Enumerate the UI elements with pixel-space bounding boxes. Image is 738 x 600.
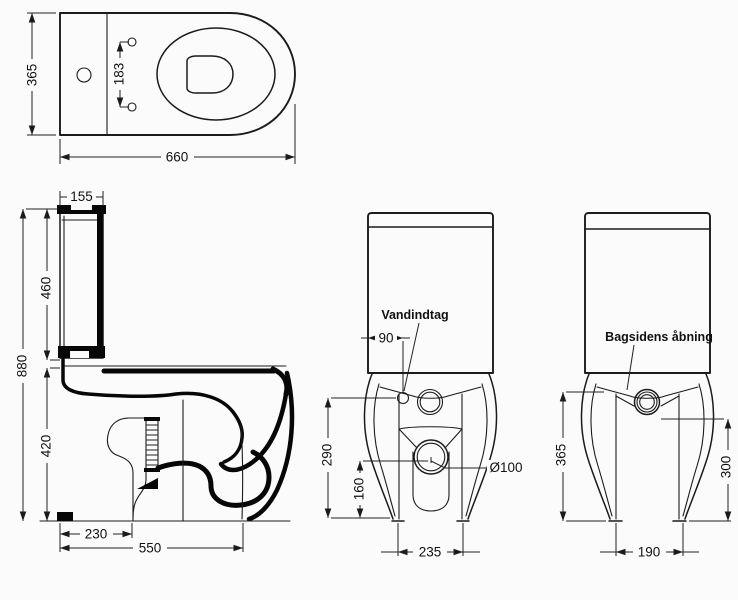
- dim-top-depth-value: 365: [25, 64, 40, 87]
- leader-rear-opening: [627, 345, 634, 390]
- leader-water-inlet: [404, 323, 419, 391]
- dim-back-base-width-value: 190: [638, 545, 661, 560]
- front-cistern-outline: [368, 213, 493, 373]
- label-water-inlet: Vandindtag: [381, 308, 448, 391]
- dim-rear-outlet-height: 300: [661, 419, 734, 521]
- side-view: 155 880 460 420: [15, 189, 293, 556]
- dim-seat-hole-spacing: 183: [112, 42, 130, 107]
- dim-outlet-height-value: 160: [352, 478, 367, 501]
- flush-button: [77, 68, 91, 82]
- label-rear-opening-text: Bagsidens åbning: [605, 330, 713, 344]
- dim-bowl-height: 420: [39, 368, 61, 521]
- dim-front-base-width: 235: [381, 523, 480, 560]
- dim-trap-offset-value: 230: [85, 527, 108, 542]
- dim-total-height: 880: [15, 209, 59, 521]
- dim-front-base-width-value: 235: [419, 545, 442, 560]
- drain-pipe: [137, 417, 160, 489]
- back-cistern-outline: [585, 213, 710, 373]
- bowl-underside: [63, 358, 242, 462]
- cistern-right-wall: [97, 214, 103, 350]
- dim-trap-offset: 230: [60, 523, 132, 542]
- back-bowl-outer-right: [685, 374, 714, 519]
- bolt-hole-top: [128, 38, 136, 46]
- dim-top-depth: 365: [25, 13, 57, 135]
- toilet-dimension-drawing: 365 183 660: [0, 0, 738, 600]
- dim-cistern-height: 460: [39, 209, 61, 360]
- seat-opening: [157, 28, 275, 120]
- dim-cistern-width-value: 155: [70, 189, 93, 204]
- back-view: Bagsidens åbning 365 300: [554, 213, 734, 560]
- trap-housing-front: [133, 472, 146, 518]
- front-bowl-outer-left: [364, 374, 393, 519]
- rear-outlet-outer: [635, 390, 660, 415]
- front-top-connector-inner: [420, 392, 440, 412]
- top-view: 365 183 660: [25, 13, 296, 165]
- dim-total-height-value: 880: [15, 355, 30, 378]
- dim-inlet-height-value: 290: [320, 444, 335, 467]
- dim-seat-hole-spacing-value: 183: [112, 63, 127, 86]
- leader-outlet-diameter: [431, 461, 486, 468]
- bolt-hole-bottom: [128, 103, 136, 111]
- dim-back-base-width: 190: [600, 523, 699, 560]
- dim-cistern-width: 155: [60, 189, 103, 206]
- technical-drawing-page: 365 183 660: [0, 0, 738, 600]
- dim-outlet-height: 160: [352, 457, 432, 518]
- plan-body-outline: [60, 13, 295, 135]
- dim-cistern-height-value: 460: [39, 277, 54, 300]
- water-surface: [187, 56, 233, 93]
- trap-housing-outline: [107, 418, 146, 521]
- back-bowl-outer-left: [581, 374, 610, 519]
- dim-top-length-value: 660: [166, 150, 189, 165]
- label-rear-opening: Bagsidens åbning: [605, 330, 713, 390]
- front-top-connector-outer: [418, 390, 443, 415]
- dim-outlet-diameter: Ø100: [431, 460, 527, 475]
- dim-rear-opening-height: 365: [554, 392, 607, 521]
- dim-rear-outlet-height-value: 300: [719, 456, 734, 479]
- dim-base-depth-value: 550: [139, 541, 162, 556]
- label-water-inlet-text: Vandindtag: [381, 308, 448, 322]
- rear-outlet-inner: [640, 395, 655, 410]
- dim-outlet-diameter-value: Ø100: [489, 460, 522, 475]
- dim-inlet-offset-value: 90: [378, 331, 393, 346]
- front-bowl-outer-right: [468, 374, 497, 519]
- dim-rear-opening-height-value: 365: [554, 444, 569, 467]
- cistern-side-outline: [60, 208, 103, 358]
- wall-marker: [57, 512, 73, 521]
- front-view: Vandindtag 90 290: [320, 213, 528, 560]
- dim-bowl-height-value: 420: [39, 435, 54, 458]
